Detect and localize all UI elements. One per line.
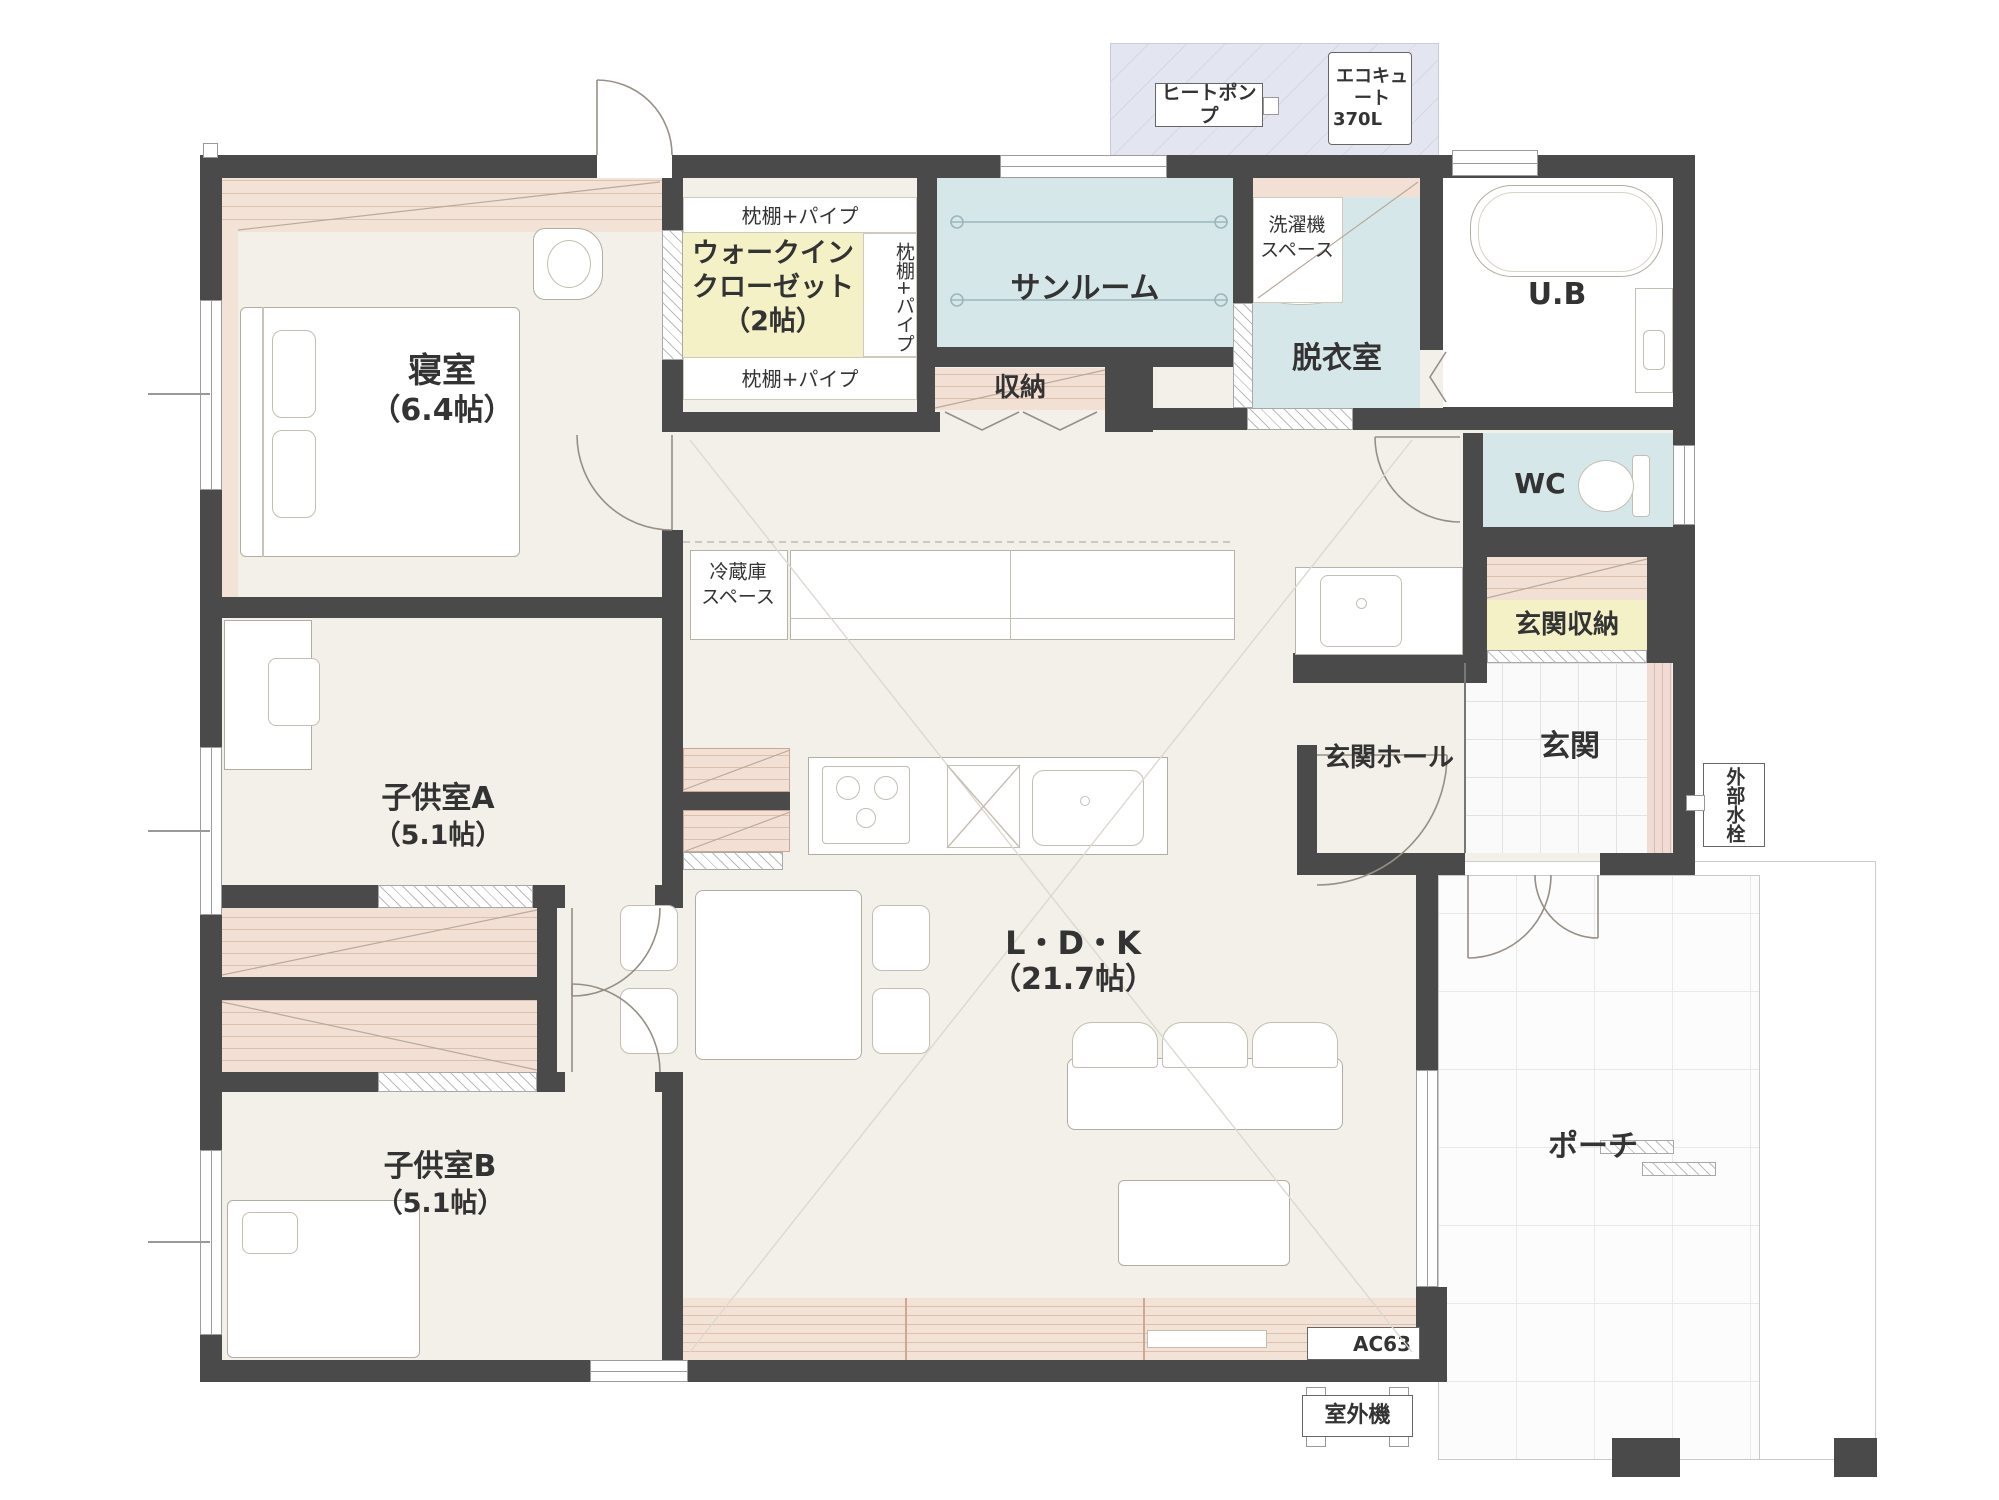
room-size-ldk: （21.7帖）: [963, 963, 1183, 998]
folding-door-storage: [945, 412, 1019, 430]
door-arc-front-left: [1468, 875, 1551, 958]
room-label-porch: ポーチ: [1513, 1130, 1673, 1165]
room-size-kids-b: （5.1帖）: [330, 1188, 550, 1219]
door-arc-hall: [1317, 755, 1447, 885]
shelf-pipe-label: 枕棚+パイプ: [700, 205, 900, 228]
bedroom-band-diagonal: [238, 182, 660, 230]
room-label-entrance-hall: 玄関ホール: [1304, 744, 1474, 774]
door-arc-kids-b: [572, 984, 660, 1072]
room-label-kids-a: 子供室A: [328, 782, 548, 817]
room-label-bedroom: 寝室: [342, 352, 542, 391]
room-label-kids-b: 子供室B: [330, 1150, 550, 1185]
door-arc-bedroom: [577, 435, 672, 530]
washer-space-label: スペース: [1242, 240, 1352, 262]
plan-linework: [0, 0, 1999, 1500]
room-label-entrance-storage: 玄関収納: [1487, 611, 1647, 641]
room-size-bedroom: （6.4帖）: [342, 394, 542, 429]
room-label-wc: WC: [1500, 468, 1580, 500]
room-label-bath: U.B: [1507, 278, 1607, 313]
room-label-entrance: 玄関: [1510, 730, 1630, 765]
fridge-space-label: 冷蔵庫: [690, 562, 786, 584]
washer-space-label: 洗濯機: [1242, 215, 1352, 237]
cabinet-diagonal: [683, 750, 790, 790]
closet-diagonal: [222, 910, 537, 975]
room-size-wic: （2帖）: [678, 306, 868, 337]
shelf-pipe-label: 枕棚+パイプ: [866, 238, 914, 356]
folding-door-storage: [1023, 412, 1097, 430]
room-label-sunroom: サンルーム: [975, 272, 1195, 307]
room-label-wic: ウォークイン: [678, 238, 868, 269]
door-arc-wc: [1375, 437, 1460, 522]
floor-plan: ヒートポンプ エコキュート 370L: [0, 0, 1999, 1500]
room-label-storage: 収納: [960, 374, 1080, 404]
room-label-ldk: L・D・K: [963, 925, 1183, 962]
door-arc-back-door: [597, 80, 672, 155]
room-label-wic: クローゼット: [678, 272, 868, 303]
folding-door-bath: [1430, 352, 1446, 402]
shelf-pipe-label: 枕棚+パイプ: [700, 368, 900, 391]
room-size-kids-a: （5.1帖）: [328, 820, 548, 851]
cabinet-diagonal: [683, 812, 790, 852]
closet-diagonal: [222, 1002, 537, 1070]
room-label-dressing: 脱衣室: [1257, 342, 1417, 377]
entrance-storage-diagonal: [1487, 559, 1647, 598]
door-arc-kids-a: [572, 908, 660, 996]
fridge-space-label: スペース: [690, 587, 786, 609]
